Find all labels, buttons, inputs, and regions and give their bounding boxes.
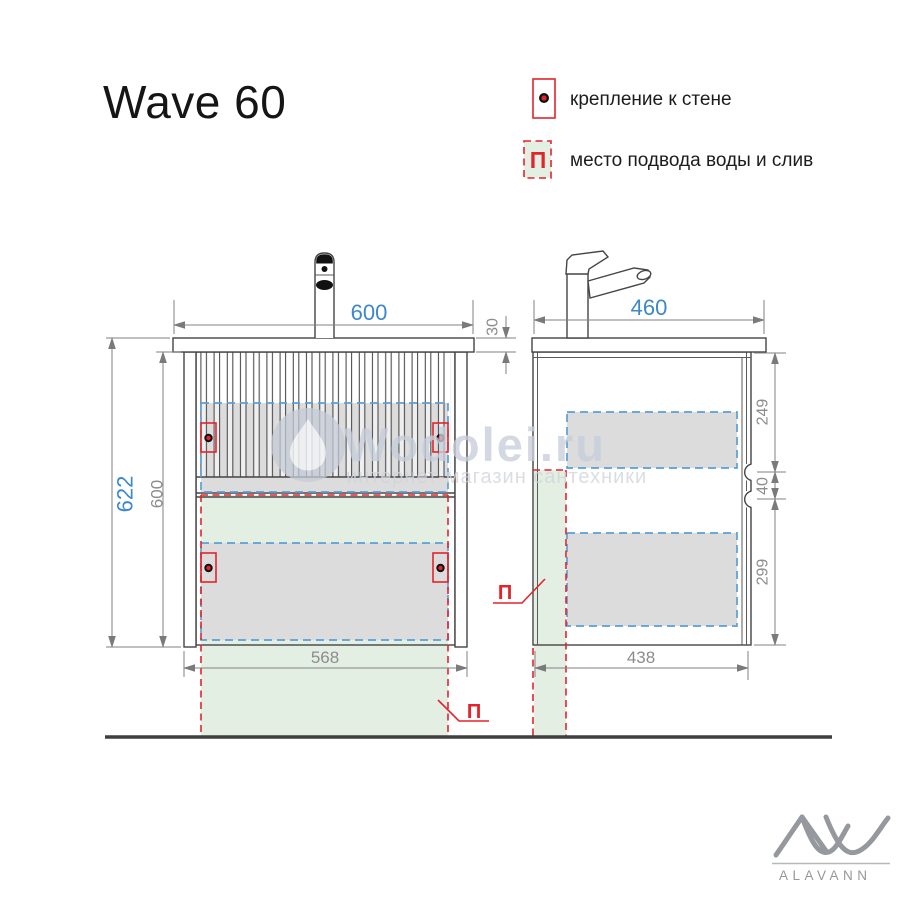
legend-water-supply-label: место подвода воды и слив: [570, 150, 813, 171]
brand-logo: ALAVANN: [772, 817, 890, 883]
dim-value-600-width: 600: [351, 300, 388, 325]
front-lower-drawer-zone: [201, 543, 448, 640]
side-dim-depth-438: 438: [535, 648, 748, 680]
watermark: Wodolei.ru интернет-магазин сантехники: [271, 408, 647, 488]
front-dim-height-622: 622: [106, 338, 181, 647]
side-callout-label: П: [498, 582, 512, 604]
side-countertop: [532, 338, 766, 352]
legend: крепление к стене П место подвода воды и…: [524, 79, 813, 178]
side-lower-drawer-zone: [567, 533, 737, 626]
dim-value-622: 622: [113, 476, 138, 513]
front-view: 600 30 622 600 568 П: [106, 253, 516, 737]
front-dim-countertop-30: 30: [476, 316, 516, 374]
legend-wall-mount: крепление к стене: [533, 79, 732, 118]
dim-value-40: 40: [755, 477, 772, 495]
front-callout-label: П: [467, 701, 481, 723]
brand-name: ALAVANN: [779, 868, 872, 883]
legend-water-symbol: П: [530, 147, 547, 173]
front-right-panel: [455, 352, 467, 647]
dim-value-30: 30: [485, 318, 502, 336]
watermark-subtitle: интернет-магазин сантехники: [346, 466, 647, 488]
wall-mount-dot-inner: [541, 95, 546, 100]
side-dim-chain-right: 249 40 299: [754, 353, 786, 645]
watermark-site: Wodolei.ru: [344, 418, 606, 471]
front-dim-height-600: 600: [148, 352, 182, 647]
front-left-panel: [184, 352, 196, 647]
dim-value-460: 460: [631, 295, 668, 320]
faucet-lever: [566, 251, 608, 274]
dim-value-568: 568: [311, 648, 339, 667]
faucet-spout-front: [316, 280, 333, 290]
side-water-zone: [534, 470, 566, 737]
page-title: Wave 60: [103, 76, 286, 128]
dim-value-249: 249: [755, 399, 772, 426]
front-countertop: [173, 338, 474, 352]
dim-value-299: 299: [755, 559, 772, 586]
dim-value-600-height: 600: [148, 480, 167, 508]
faucet-cap: [316, 254, 333, 263]
legend-wall-mount-label: крепление к стене: [570, 89, 732, 110]
drawing-page: Wave 60 крепление к стене П место подвод…: [0, 0, 900, 900]
brand-mark-icon: [776, 817, 888, 855]
side-view: 460 249 40 299 438 П: [493, 251, 786, 737]
vanity-technical-drawing: Wave 60 крепление к стене П место подвод…: [0, 0, 900, 900]
faucet-dot: [322, 266, 328, 272]
dim-value-438: 438: [627, 648, 655, 667]
legend-water-supply: П место подвода воды и слив: [524, 141, 813, 178]
